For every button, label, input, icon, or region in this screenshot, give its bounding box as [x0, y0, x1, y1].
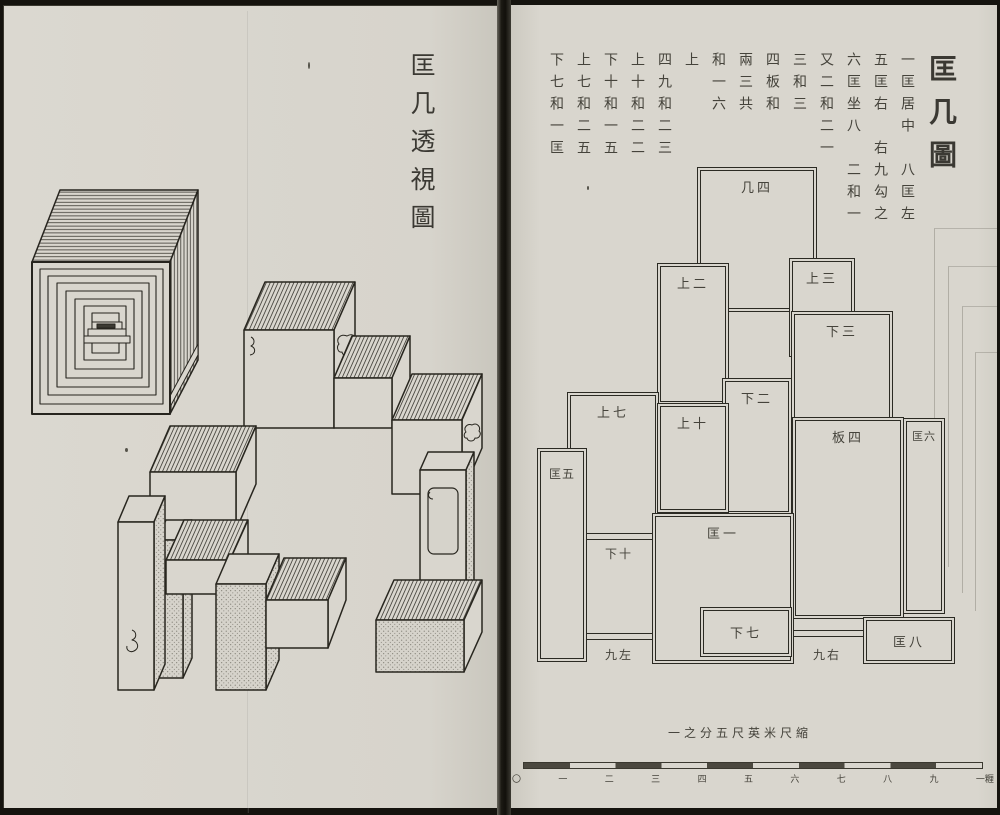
- scale-tick-labels: 〇一二三四五六七八九一糎: [512, 772, 994, 785]
- scale-bar: [523, 762, 983, 769]
- scale-tick-label: 四: [698, 772, 707, 785]
- diagram-strip-xia10: [585, 533, 652, 540]
- diagram-box-ban4: 板四: [792, 417, 904, 619]
- instruction-column: 又二和二一: [818, 52, 832, 228]
- show-through-line: [975, 352, 997, 611]
- instruction-column: 上七和二五: [575, 52, 589, 228]
- instruction-column: 四九和二三: [656, 52, 670, 228]
- scale-tick-label: 六: [790, 772, 799, 785]
- instruction-column: 一匡居中 八匡左: [899, 52, 913, 228]
- scale-tick-label: 七: [837, 772, 846, 785]
- ink-speck: [308, 62, 310, 69]
- page-gutter: [497, 0, 511, 815]
- diagram-box-kuang5: 匡五: [537, 448, 587, 662]
- instruction-column: 六匡坐八 二和一: [845, 52, 859, 228]
- diagram-box-xia2: 下二: [722, 378, 792, 515]
- diagram-box-shang2: 上二: [657, 263, 729, 405]
- diagram-strip-label-jiuzuo: 九左: [596, 646, 642, 663]
- instruction-column: 下十和一五: [602, 52, 616, 228]
- scale-tick-label: 五: [744, 772, 753, 785]
- scale-tick-label: 二: [605, 772, 614, 785]
- instruction-column: 五匡右 右九勾之: [872, 52, 886, 228]
- diagram-strip-jiuzuo: [585, 633, 652, 640]
- scale-tick-label: 〇: [512, 772, 521, 785]
- right-page-title: 匡几圖: [926, 54, 954, 183]
- scale-caption: 一之分五尺英米尺縮: [640, 724, 840, 741]
- diagram-strip-label-xia10: 下十: [596, 545, 642, 562]
- nested-cube: [32, 190, 198, 414]
- book-scan: 匡几透視圖 匡几圖 一匡居中 八匡左五匡右 右九勾之六匡坐八 二和一又二和二一三…: [0, 0, 1000, 815]
- left-page-title: 匡几透視圖: [408, 52, 433, 242]
- diagram-box-kuang6: 匡六: [903, 418, 945, 614]
- instruction-column: 上十和二二: [629, 52, 643, 228]
- instruction-column: 下七和一匡: [548, 52, 562, 228]
- scale-tick-label: 三: [651, 772, 660, 785]
- ink-speck: [587, 186, 589, 190]
- diagram-box-shang10: 上十: [657, 403, 729, 513]
- diagram-box-kuang8: 匡八: [863, 617, 955, 664]
- scale-tick-label: 一糎: [976, 772, 994, 785]
- scale-tick-label: 一: [558, 772, 567, 785]
- diagram-strip-jiuyou: [790, 630, 863, 637]
- diagram-strip-label-jiuyou: 九右: [804, 646, 850, 663]
- scale-tick-label: 八: [883, 772, 892, 785]
- ink-speck: [125, 448, 128, 452]
- diagram-box-xia7: 下七: [700, 607, 792, 657]
- scale-tick-label: 九: [930, 772, 939, 785]
- instruction-column: 上: [683, 52, 697, 228]
